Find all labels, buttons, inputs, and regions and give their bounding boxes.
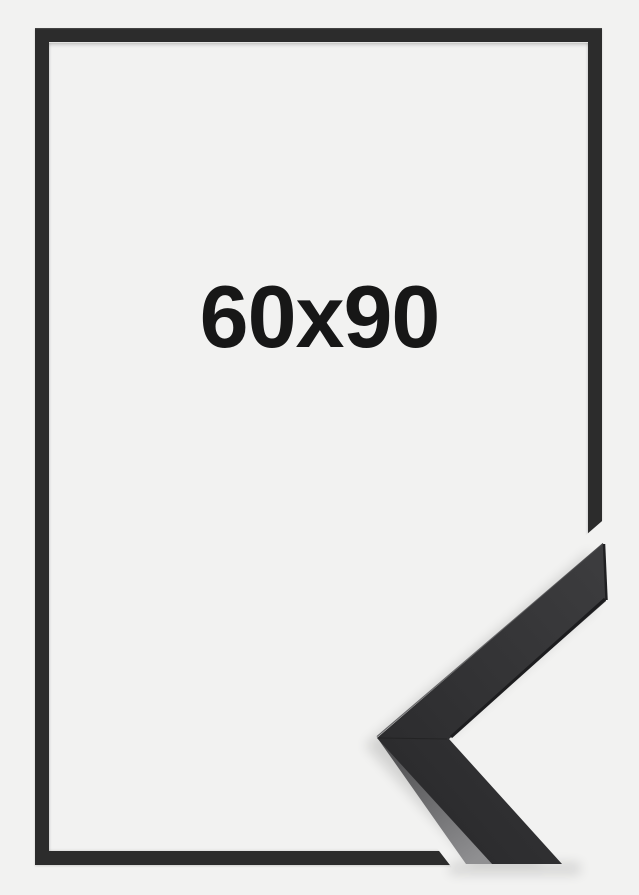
size-label: 60x90 — [0, 273, 639, 361]
frame-opening — [49, 42, 588, 851]
moulding-end-edge-line — [604, 544, 607, 600]
picture-frame-border — [35, 28, 602, 865]
product-image-canvas: 60x90 — [0, 0, 639, 895]
